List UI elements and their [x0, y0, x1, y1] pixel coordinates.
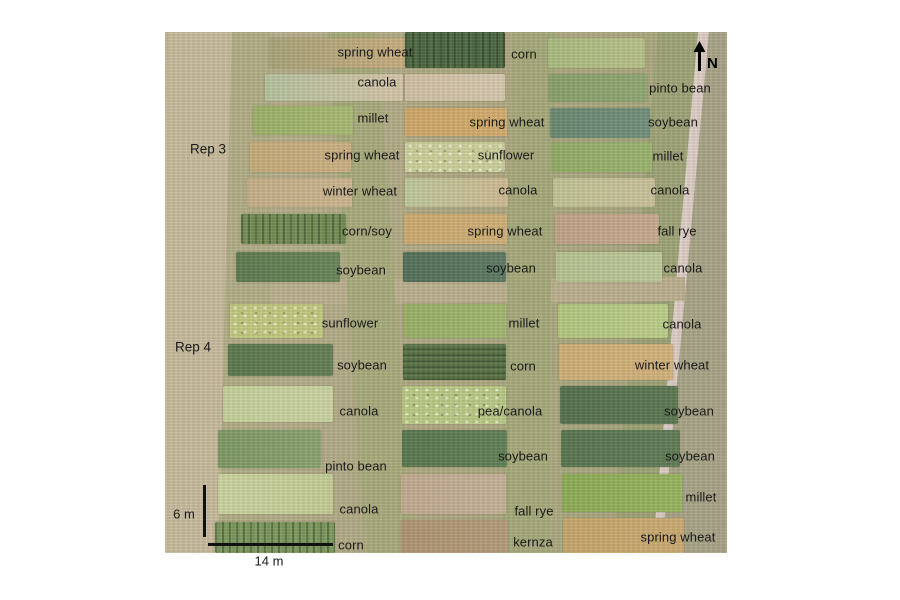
aisle-mid-right [502, 32, 556, 553]
plot-label-canola: canola [340, 503, 379, 516]
plot-label-canola: canola [499, 184, 538, 197]
plot-canola [556, 252, 662, 282]
plot-soybean [561, 430, 680, 467]
plot-label-winter-wheat: winter wheat [323, 185, 397, 198]
plot-soybean [550, 108, 650, 138]
plot-label-soybean: soybean [665, 450, 715, 463]
plot-label-pinto-bean: pinto bean [325, 460, 387, 473]
plot-label-canola: canola [358, 76, 397, 89]
vertical-scale-bar [203, 485, 206, 537]
plot-label-fall-rye: fall rye [657, 225, 696, 238]
plot-label-corn: corn [338, 539, 364, 552]
plot-label-soybean: soybean [648, 116, 698, 129]
plot-label-corn: corn [510, 360, 536, 373]
plot-label-soybean: soybean [337, 359, 387, 372]
plot-millet [253, 106, 353, 135]
plot-label-spring-wheat: spring wheat [468, 225, 543, 238]
plot-millet [552, 142, 652, 172]
plot-label-corn-soy: corn/soy [342, 225, 392, 238]
plot-millet [562, 474, 682, 512]
north-indicator: N [693, 41, 718, 72]
plot-soybean [402, 430, 507, 467]
plot-unlabeled [405, 74, 505, 101]
plot-label-soybean: soybean [486, 262, 536, 275]
figure-canvas: Rep 3 Rep 4 N 6 m spring wheatcanolamill… [0, 0, 900, 600]
plot-label-spring-wheat: spring wheat [338, 46, 413, 59]
plot-corn-soy [241, 214, 346, 244]
plot-label-spring-wheat: spring wheat [641, 531, 716, 544]
plot-label-canola: canola [651, 184, 690, 197]
rep-3-label: Rep 3 [190, 142, 226, 157]
plot-canola [405, 178, 508, 207]
plot-label-pinto-bean: pinto bean [649, 82, 711, 95]
plot-label-millet: millet [509, 317, 540, 330]
horizontal-scale-bar [208, 543, 333, 546]
plot-label-canola: canola [664, 262, 703, 275]
plot-label-millet: millet [358, 112, 389, 125]
plot-label-soybean: soybean [336, 264, 386, 277]
north-label: N [707, 56, 718, 72]
plot-corn [403, 344, 506, 380]
plot-kernza [401, 520, 508, 553]
plot-label-winter-wheat: winter wheat [635, 359, 709, 372]
plot-fall-rye [401, 474, 506, 514]
rep-4-label: Rep 4 [175, 340, 211, 355]
plot-canola [223, 386, 333, 422]
plot-canola [553, 178, 655, 207]
north-arrow-icon [693, 41, 706, 72]
plot-label-soybean: soybean [664, 405, 714, 418]
aerial-photo: Rep 3 Rep 4 N 6 m spring wheatcanolamill… [165, 32, 727, 553]
plot-label-canola: canola [340, 405, 379, 418]
plot-label-millet: millet [653, 150, 684, 163]
plot-fall-rye [555, 214, 659, 244]
plot-unlabeled [548, 38, 645, 68]
plot-label-spring-wheat: spring wheat [470, 116, 545, 129]
vertical-scale-label: 6 m [173, 507, 195, 522]
horizontal-scale-label: 14 m [255, 554, 284, 569]
plot-soybean [228, 344, 333, 376]
plot-label-millet: millet [686, 491, 717, 504]
plot-soybean [236, 252, 340, 282]
plot-canola [218, 474, 333, 514]
plot-label-pea-canola: pea/canola [478, 405, 543, 418]
plot-label-fall-rye: fall rye [514, 505, 553, 518]
plot-label-sunflower: sunflower [322, 317, 379, 330]
plot-pinto-bean [549, 74, 647, 102]
plot-label-soybean: soybean [498, 450, 548, 463]
plot-sunflower [230, 304, 323, 338]
plot-soybean [560, 386, 678, 424]
plot-corn [215, 522, 335, 553]
plot-canola [558, 304, 668, 338]
plot-label-sunflower: sunflower [478, 149, 535, 162]
plot-label-canola: canola [663, 318, 702, 331]
plot-millet [403, 304, 506, 338]
plot-label-spring-wheat: spring wheat [325, 149, 400, 162]
plot-pinto-bean [218, 430, 321, 468]
plot-label-corn: corn [511, 48, 537, 61]
plot-label-kernza: kernza [513, 536, 553, 549]
plot-corn [405, 32, 505, 68]
